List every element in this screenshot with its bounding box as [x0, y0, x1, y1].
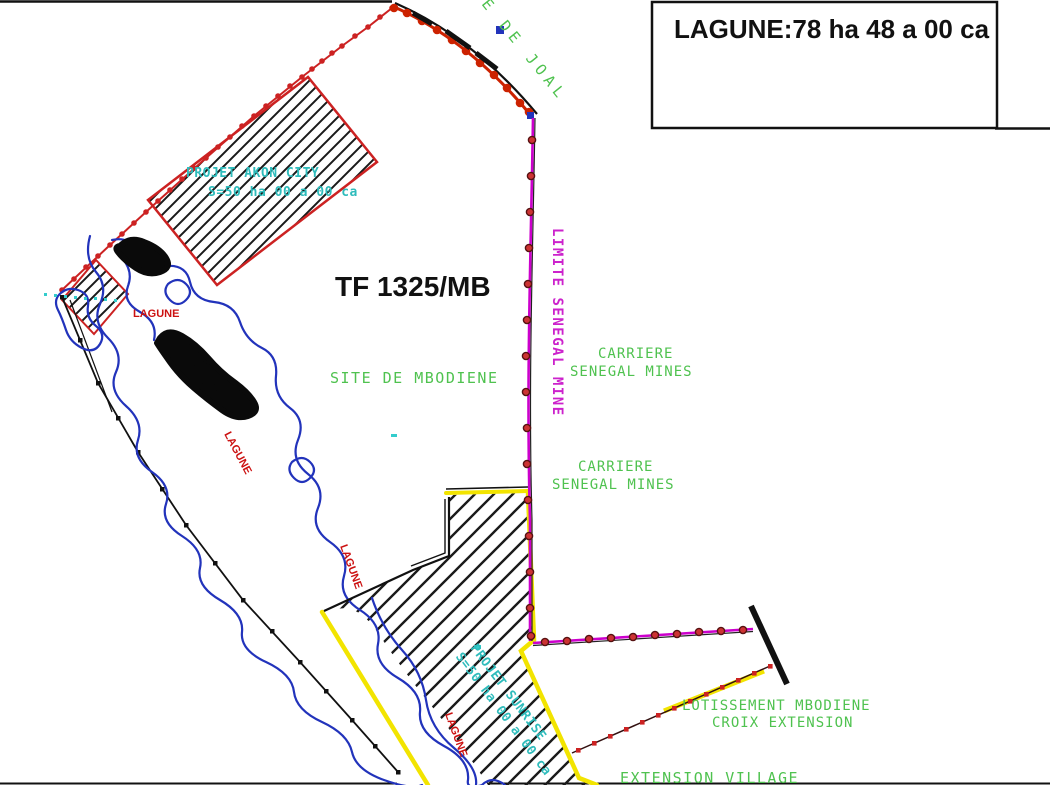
lagune-label-2: LAGUNE — [221, 430, 253, 477]
lagune-label-1: LAGUNE — [133, 308, 179, 320]
road-outline — [390, 3, 537, 119]
carriere-upper-line2: SENEGAL MINES — [570, 364, 693, 380]
road-label: E DE JOAL — [478, 0, 571, 105]
carriere-lower-line1: CARRIERE — [578, 459, 653, 475]
site-label: SITE DE MBODIENE — [330, 369, 499, 387]
carriere-upper-line1: CARRIERE — [598, 346, 673, 362]
extension-village-label: EXTENSION VILLAGE — [620, 769, 799, 785]
title-box: LAGUNE:78 ha 48 a 00 ca — [652, 2, 997, 128]
lotissement-label-line2: CROIX EXTENSION — [712, 715, 853, 731]
west-boundary — [60, 295, 401, 775]
lagune-label-3: LAGUNE — [337, 543, 364, 591]
akon-city-area-value: S=50 ha 00 a 00 ca — [208, 185, 358, 200]
mine-boundary-label: LIMITE SENEGAL MINE — [549, 228, 565, 417]
title-box-label: LAGUNE:78 ha 48 a 00 ca — [674, 14, 990, 44]
akon-city-label: PROJET AKON CITY — [186, 166, 319, 181]
cadastral-map: PROJET AKON CITY S=50 ha 00 a 00 ca TF 1… — [0, 0, 1050, 785]
parcel-id-label: TF 1325/MB — [335, 271, 491, 302]
lotissement-label-line1: LOTISSEMENT MBODIENE — [682, 698, 871, 714]
map-canvas: PROJET AKON CITY S=50 ha 00 a 00 ca TF 1… — [0, 0, 1050, 785]
carriere-lower-line2: SENEGAL MINES — [552, 477, 675, 493]
boundary-vertex-marker — [527, 112, 534, 119]
